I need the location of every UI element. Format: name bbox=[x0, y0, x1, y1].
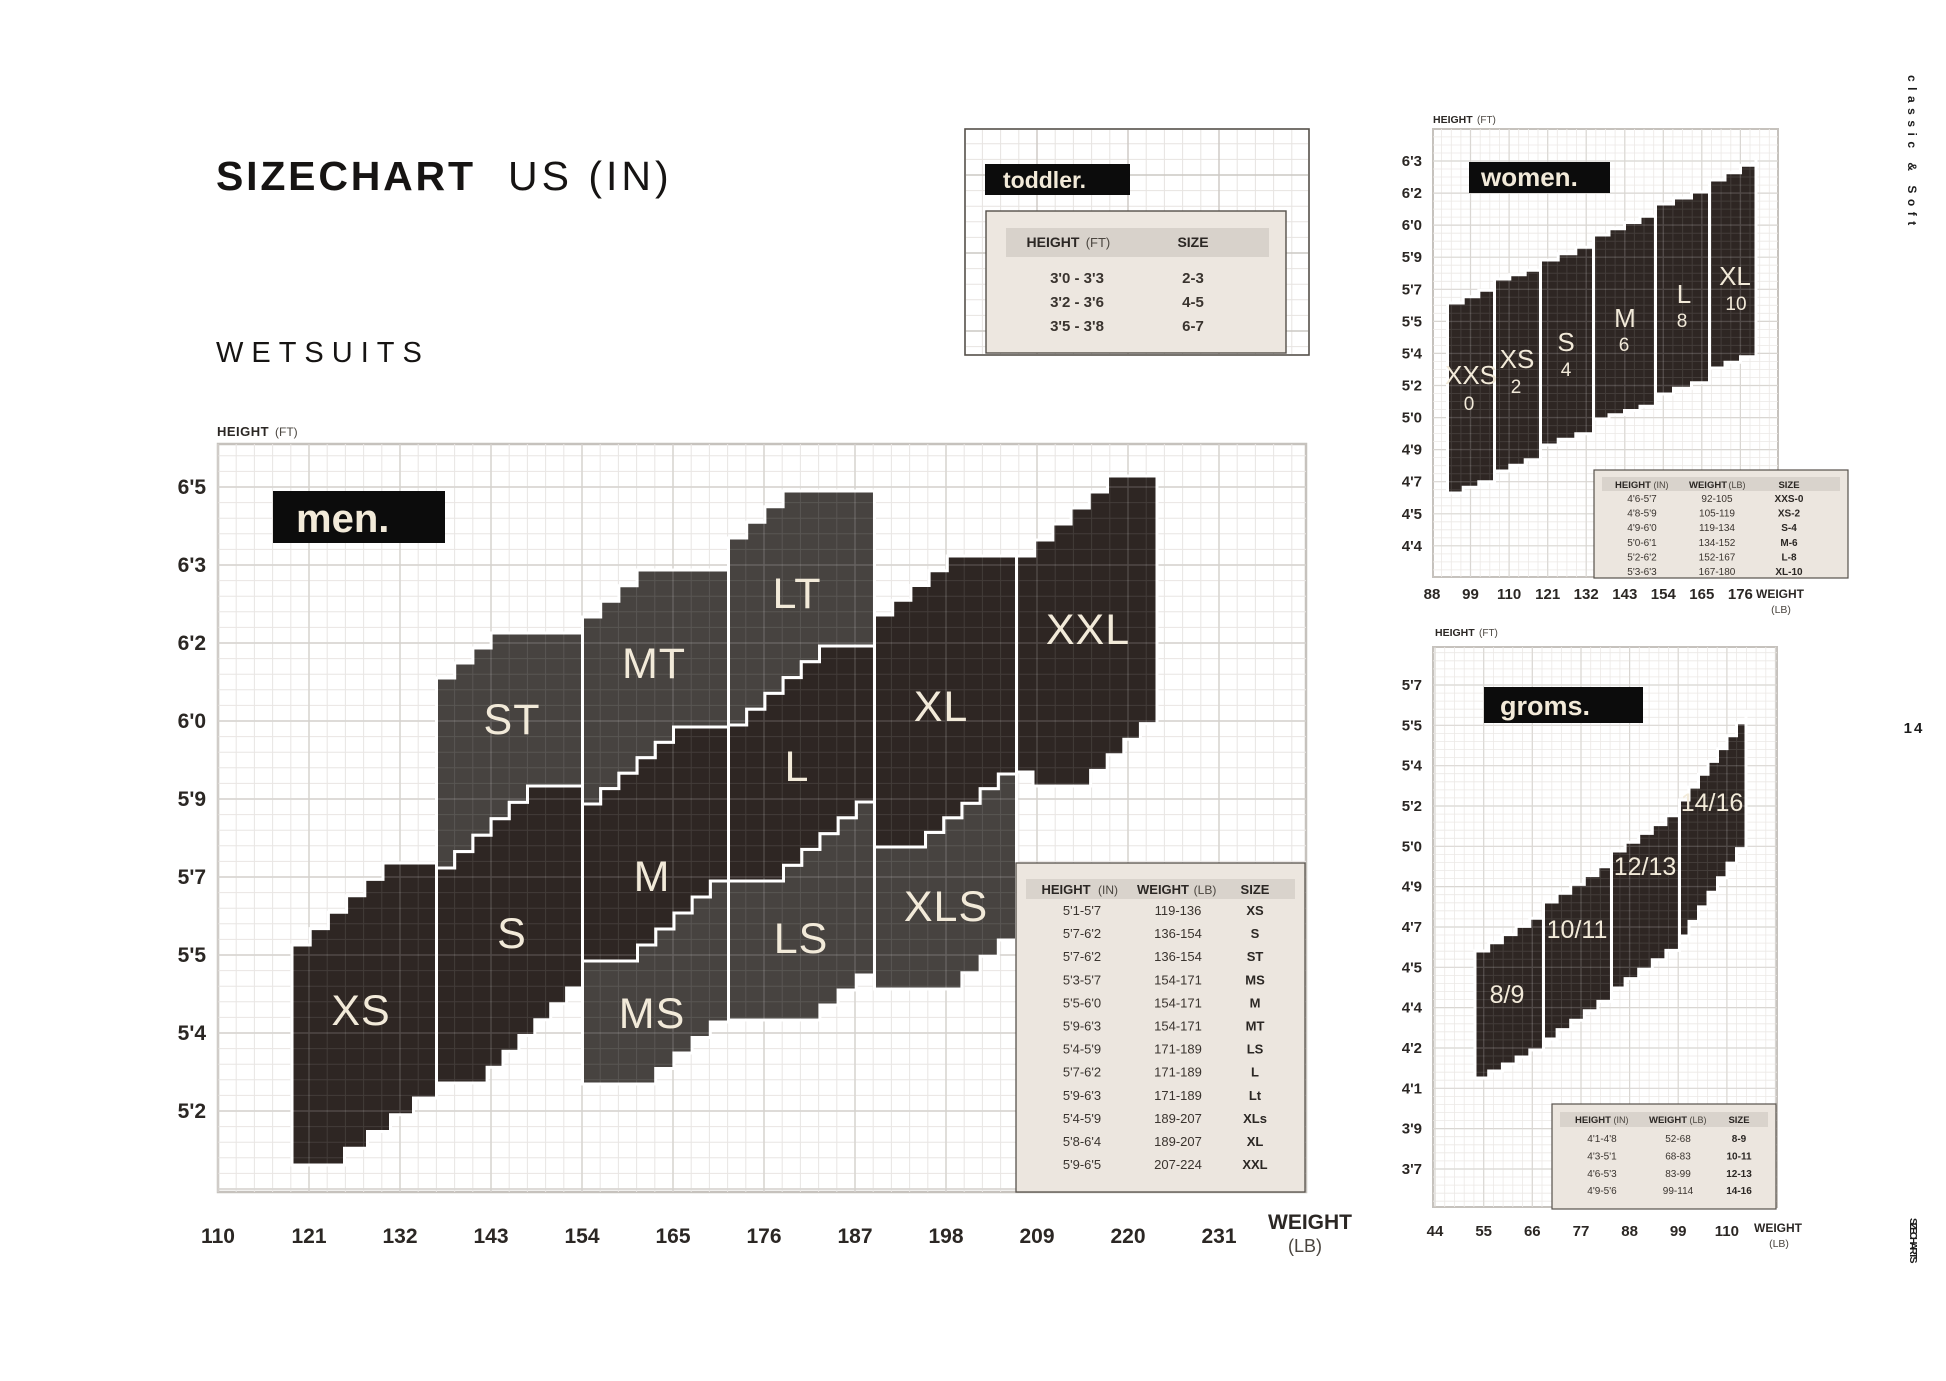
svg-text:5'9: 5'9 bbox=[1402, 249, 1422, 266]
svg-text:WEIGHT: WEIGHT bbox=[1754, 1221, 1803, 1235]
svg-text:110: 110 bbox=[1497, 586, 1521, 603]
svg-text:6'0: 6'0 bbox=[1402, 217, 1422, 234]
svg-text:171-189: 171-189 bbox=[1154, 1042, 1202, 1057]
svg-text:143: 143 bbox=[473, 1225, 508, 1248]
svg-text:XL: XL bbox=[914, 683, 969, 731]
svg-text:toddler.: toddler. bbox=[1003, 167, 1086, 193]
svg-text:165: 165 bbox=[1689, 586, 1714, 603]
svg-text:XXS: XXS bbox=[1445, 360, 1497, 390]
svg-text:WETSUITS: WETSUITS bbox=[216, 337, 430, 369]
svg-text:4'4: 4'4 bbox=[1402, 538, 1423, 555]
svg-text:classic & Soft: classic & Soft bbox=[1905, 75, 1919, 231]
svg-text:HEIGHT: HEIGHT bbox=[1041, 882, 1090, 897]
svg-text:4'5: 4'5 bbox=[1402, 506, 1422, 523]
svg-text:14: 14 bbox=[1904, 720, 1925, 737]
svg-text:6: 6 bbox=[1619, 335, 1630, 356]
svg-text:207-224: 207-224 bbox=[1154, 1157, 1202, 1172]
svg-text:66: 66 bbox=[1524, 1223, 1541, 1240]
svg-text:14-16: 14-16 bbox=[1726, 1186, 1752, 1197]
svg-text:209: 209 bbox=[1019, 1225, 1054, 1248]
svg-text:S: S bbox=[1251, 926, 1260, 941]
svg-text:5'7-6'2: 5'7-6'2 bbox=[1063, 949, 1101, 964]
svg-text:S: S bbox=[497, 910, 527, 958]
svg-text:XS-2: XS-2 bbox=[1778, 509, 1801, 520]
svg-text:XS: XS bbox=[1500, 344, 1535, 374]
svg-text:77: 77 bbox=[1573, 1223, 1590, 1240]
svg-text:XL: XL bbox=[1247, 1134, 1264, 1149]
svg-text:154: 154 bbox=[1651, 586, 1677, 603]
svg-text:4'4: 4'4 bbox=[1402, 1000, 1423, 1017]
svg-text:5'9: 5'9 bbox=[178, 788, 206, 811]
svg-text:5'4: 5'4 bbox=[178, 1022, 207, 1045]
svg-text:US (IN): US (IN) bbox=[508, 153, 673, 199]
svg-text:(LB): (LB) bbox=[1771, 604, 1791, 616]
svg-text:(LB): (LB) bbox=[1769, 1238, 1789, 1250]
svg-text:5'8-6'4: 5'8-6'4 bbox=[1063, 1134, 1101, 1149]
svg-text:165: 165 bbox=[655, 1225, 690, 1248]
svg-text:6'3: 6'3 bbox=[1402, 153, 1422, 170]
svg-text:2-3: 2-3 bbox=[1182, 270, 1204, 287]
svg-text:XL-10: XL-10 bbox=[1775, 567, 1803, 578]
svg-text:3'5 - 3'8: 3'5 - 3'8 bbox=[1050, 318, 1104, 335]
svg-text:4'5: 4'5 bbox=[1402, 959, 1422, 976]
svg-text:167-180: 167-180 bbox=[1699, 567, 1736, 578]
svg-text:WEIGHT: WEIGHT bbox=[1137, 882, 1189, 897]
svg-text:99: 99 bbox=[1670, 1223, 1687, 1240]
svg-text:14/16: 14/16 bbox=[1681, 789, 1744, 817]
svg-text:220: 220 bbox=[1110, 1225, 1145, 1248]
svg-text:99: 99 bbox=[1462, 586, 1479, 603]
svg-text:189-207: 189-207 bbox=[1154, 1111, 1202, 1126]
svg-text:231: 231 bbox=[1201, 1225, 1236, 1248]
svg-text:154-171: 154-171 bbox=[1154, 1019, 1202, 1034]
svg-text:(FT): (FT) bbox=[1477, 115, 1496, 126]
svg-text:6'2: 6'2 bbox=[1402, 185, 1422, 202]
svg-text:(LB): (LB) bbox=[1288, 1236, 1322, 1256]
svg-text:women.: women. bbox=[1480, 162, 1578, 192]
svg-text:3'9: 3'9 bbox=[1402, 1121, 1422, 1138]
svg-text:5'9-6'3: 5'9-6'3 bbox=[1063, 1019, 1101, 1034]
svg-text:HEIGHT: HEIGHT bbox=[217, 424, 269, 439]
svg-text:Lt: Lt bbox=[1249, 1088, 1262, 1103]
svg-text:(FT): (FT) bbox=[275, 425, 298, 439]
svg-text:5'7: 5'7 bbox=[1402, 677, 1422, 694]
svg-text:5'7: 5'7 bbox=[178, 866, 206, 889]
svg-text:5'0: 5'0 bbox=[1402, 410, 1422, 427]
svg-text:88: 88 bbox=[1621, 1223, 1638, 1240]
svg-text:88: 88 bbox=[1424, 586, 1441, 603]
svg-text:5'2: 5'2 bbox=[178, 1100, 206, 1123]
svg-text:105-119: 105-119 bbox=[1699, 509, 1735, 520]
svg-text:HEIGHT: HEIGHT bbox=[1027, 234, 1080, 250]
svg-text:110: 110 bbox=[1715, 1223, 1739, 1240]
svg-text:171-189: 171-189 bbox=[1154, 1065, 1202, 1080]
svg-text:4'2: 4'2 bbox=[1402, 1040, 1422, 1057]
svg-text:5'0-6'1: 5'0-6'1 bbox=[1627, 538, 1657, 549]
svg-text:4'7: 4'7 bbox=[1402, 919, 1422, 936]
svg-text:152-167: 152-167 bbox=[1699, 552, 1736, 563]
svg-text:groms.: groms. bbox=[1500, 691, 1590, 721]
svg-text:XL: XL bbox=[1719, 261, 1751, 291]
svg-text:5'2: 5'2 bbox=[1402, 378, 1422, 395]
svg-text:4'9: 4'9 bbox=[1402, 879, 1422, 896]
svg-text:M: M bbox=[1614, 303, 1636, 333]
svg-text:SIZECHARTS: SIZECHARTS bbox=[1907, 1218, 1919, 1263]
svg-text:SIZE: SIZE bbox=[1241, 882, 1270, 897]
svg-text:4'7: 4'7 bbox=[1402, 474, 1422, 491]
svg-text:4'3-5'1: 4'3-5'1 bbox=[1587, 1151, 1617, 1162]
svg-text:5'1-5'7: 5'1-5'7 bbox=[1063, 903, 1101, 918]
svg-text:L: L bbox=[1677, 279, 1691, 309]
svg-text:5'5: 5'5 bbox=[1402, 313, 1422, 330]
svg-text:8-9: 8-9 bbox=[1732, 1134, 1747, 1145]
svg-text:(IN): (IN) bbox=[1614, 1115, 1629, 1125]
svg-text:171-189: 171-189 bbox=[1154, 1088, 1202, 1103]
svg-text:S: S bbox=[1557, 327, 1574, 357]
svg-text:(IN): (IN) bbox=[1098, 883, 1118, 897]
svg-text:143: 143 bbox=[1612, 586, 1637, 603]
svg-text:L-8: L-8 bbox=[1782, 552, 1797, 563]
svg-text:6'5: 6'5 bbox=[178, 476, 207, 499]
svg-text:154-171: 154-171 bbox=[1154, 995, 1202, 1010]
svg-text:(IN): (IN) bbox=[1654, 480, 1669, 490]
svg-text:4'8-5'9: 4'8-5'9 bbox=[1627, 509, 1657, 520]
svg-text:5'3-6'3: 5'3-6'3 bbox=[1627, 567, 1657, 578]
svg-text:XLS: XLS bbox=[904, 883, 988, 931]
svg-text:XXL: XXL bbox=[1046, 606, 1130, 654]
svg-text:HEIGHT: HEIGHT bbox=[1615, 480, 1651, 491]
svg-text:XXL: XXL bbox=[1242, 1157, 1267, 1172]
svg-text:5'9-6'3: 5'9-6'3 bbox=[1063, 1088, 1101, 1103]
svg-text:3'7: 3'7 bbox=[1402, 1161, 1422, 1178]
svg-text:XS: XS bbox=[331, 987, 390, 1035]
svg-text:LS: LS bbox=[1247, 1042, 1264, 1057]
svg-text:5'3-5'7: 5'3-5'7 bbox=[1063, 972, 1101, 987]
svg-text:MT: MT bbox=[622, 640, 686, 688]
svg-text:5'4: 5'4 bbox=[1402, 758, 1423, 775]
svg-text:136-154: 136-154 bbox=[1154, 926, 1202, 941]
svg-text:3'2 - 3'6: 3'2 - 3'6 bbox=[1050, 294, 1104, 311]
svg-text:44: 44 bbox=[1427, 1223, 1444, 1240]
svg-text:198: 198 bbox=[928, 1225, 963, 1248]
svg-text:MS: MS bbox=[1245, 972, 1265, 987]
svg-text:154-171: 154-171 bbox=[1154, 972, 1202, 987]
svg-text:5'5: 5'5 bbox=[178, 944, 207, 967]
svg-text:5'7-6'2: 5'7-6'2 bbox=[1063, 926, 1101, 941]
svg-text:189-207: 189-207 bbox=[1154, 1134, 1202, 1149]
svg-text:ST: ST bbox=[484, 696, 541, 744]
svg-text:5'9-6'5: 5'9-6'5 bbox=[1063, 1157, 1101, 1172]
svg-text:WEIGHT: WEIGHT bbox=[1649, 1115, 1687, 1126]
svg-text:5'4-5'9: 5'4-5'9 bbox=[1063, 1042, 1101, 1057]
svg-text:5'4: 5'4 bbox=[1402, 345, 1423, 362]
svg-text:92-105: 92-105 bbox=[1701, 494, 1733, 505]
svg-text:WEIGHT: WEIGHT bbox=[1689, 480, 1727, 491]
svg-text:187: 187 bbox=[837, 1225, 872, 1248]
svg-text:L: L bbox=[785, 743, 810, 791]
svg-text:LT: LT bbox=[773, 570, 822, 618]
svg-text:4: 4 bbox=[1561, 360, 1572, 381]
svg-text:176: 176 bbox=[746, 1225, 781, 1248]
svg-text:5'2-6'2: 5'2-6'2 bbox=[1627, 552, 1657, 563]
svg-text:8/9: 8/9 bbox=[1490, 981, 1525, 1009]
svg-text:8: 8 bbox=[1677, 311, 1688, 332]
svg-text:68-83: 68-83 bbox=[1665, 1151, 1691, 1162]
svg-text:121: 121 bbox=[291, 1225, 326, 1248]
svg-text:4'1: 4'1 bbox=[1402, 1080, 1422, 1097]
svg-text:SIZE: SIZE bbox=[1728, 1115, 1749, 1126]
svg-text:119-134: 119-134 bbox=[1699, 523, 1735, 534]
svg-text:10/11: 10/11 bbox=[1547, 916, 1608, 944]
svg-text:M-6: M-6 bbox=[1780, 538, 1798, 549]
svg-text:10-11: 10-11 bbox=[1726, 1151, 1751, 1162]
svg-text:4-5: 4-5 bbox=[1182, 294, 1204, 311]
svg-text:55: 55 bbox=[1475, 1223, 1492, 1240]
svg-text:XLs: XLs bbox=[1243, 1111, 1267, 1126]
svg-text:XXS-0: XXS-0 bbox=[1775, 494, 1804, 505]
svg-text:12/13: 12/13 bbox=[1614, 853, 1677, 881]
svg-text:(FT): (FT) bbox=[1479, 628, 1498, 639]
svg-text:119-136: 119-136 bbox=[1155, 903, 1202, 918]
svg-text:3'0 - 3'3: 3'0 - 3'3 bbox=[1050, 270, 1104, 287]
svg-text:176: 176 bbox=[1728, 586, 1753, 603]
svg-text:M: M bbox=[1250, 995, 1261, 1010]
svg-text:5'0: 5'0 bbox=[1402, 838, 1422, 855]
svg-text:6'2: 6'2 bbox=[178, 632, 206, 655]
svg-text:99-114: 99-114 bbox=[1663, 1186, 1694, 1197]
svg-text:136-154: 136-154 bbox=[1154, 949, 1202, 964]
svg-text:83-99: 83-99 bbox=[1665, 1169, 1691, 1180]
svg-text:4'1-4'8: 4'1-4'8 bbox=[1587, 1134, 1617, 1145]
svg-text:(LB): (LB) bbox=[1689, 1115, 1706, 1125]
svg-text:4'6-5'7: 4'6-5'7 bbox=[1627, 494, 1657, 505]
svg-text:132: 132 bbox=[382, 1225, 417, 1248]
svg-text:L: L bbox=[1251, 1065, 1259, 1080]
svg-text:154: 154 bbox=[564, 1225, 599, 1248]
svg-text:6-7: 6-7 bbox=[1182, 318, 1204, 335]
svg-text:M: M bbox=[634, 853, 671, 901]
svg-text:SIZE: SIZE bbox=[1778, 480, 1799, 491]
svg-text:110: 110 bbox=[201, 1225, 235, 1248]
svg-text:4'6-5'3: 4'6-5'3 bbox=[1587, 1169, 1617, 1180]
svg-text:(LB): (LB) bbox=[1194, 883, 1217, 897]
svg-text:MS: MS bbox=[619, 990, 686, 1038]
svg-text:HEIGHT: HEIGHT bbox=[1575, 1115, 1611, 1126]
svg-text:LS: LS bbox=[774, 915, 829, 963]
svg-text:121: 121 bbox=[1535, 586, 1560, 603]
svg-text:5'5-6'0: 5'5-6'0 bbox=[1063, 995, 1101, 1010]
svg-text:(LB): (LB) bbox=[1728, 480, 1745, 490]
svg-text:SIZE: SIZE bbox=[1177, 234, 1208, 250]
svg-text:4'9: 4'9 bbox=[1402, 442, 1422, 459]
svg-text:2: 2 bbox=[1511, 377, 1522, 398]
svg-text:5'5: 5'5 bbox=[1402, 717, 1422, 734]
svg-text:6'0: 6'0 bbox=[178, 710, 206, 733]
svg-text:MT: MT bbox=[1246, 1019, 1265, 1034]
svg-text:5'7-6'2: 5'7-6'2 bbox=[1063, 1065, 1101, 1080]
svg-text:4'9-5'6: 4'9-5'6 bbox=[1587, 1186, 1617, 1197]
svg-text:4'9-6'0: 4'9-6'0 bbox=[1627, 523, 1657, 534]
svg-text:SIZECHART: SIZECHART bbox=[216, 153, 476, 199]
svg-text:134-152: 134-152 bbox=[1699, 538, 1736, 549]
svg-text:5'7: 5'7 bbox=[1402, 281, 1422, 298]
svg-text:6'3: 6'3 bbox=[178, 554, 206, 577]
svg-text:12-13: 12-13 bbox=[1726, 1169, 1752, 1180]
svg-text:132: 132 bbox=[1574, 586, 1599, 603]
svg-text:S-4: S-4 bbox=[1781, 523, 1797, 534]
svg-text:HEIGHT: HEIGHT bbox=[1435, 627, 1475, 639]
svg-text:(FT): (FT) bbox=[1086, 235, 1111, 250]
svg-text:WEIGHT: WEIGHT bbox=[1268, 1211, 1352, 1234]
svg-text:0: 0 bbox=[1464, 394, 1475, 415]
svg-text:52-68: 52-68 bbox=[1665, 1134, 1691, 1145]
svg-text:men.: men. bbox=[296, 497, 389, 541]
svg-text:HEIGHT: HEIGHT bbox=[1433, 114, 1473, 126]
svg-text:ST: ST bbox=[1247, 949, 1264, 964]
svg-text:XS: XS bbox=[1246, 903, 1264, 918]
svg-text:10: 10 bbox=[1725, 294, 1746, 315]
svg-text:WEIGHT: WEIGHT bbox=[1756, 587, 1805, 601]
svg-text:5'4-5'9: 5'4-5'9 bbox=[1063, 1111, 1101, 1126]
svg-text:5'2: 5'2 bbox=[1402, 798, 1422, 815]
